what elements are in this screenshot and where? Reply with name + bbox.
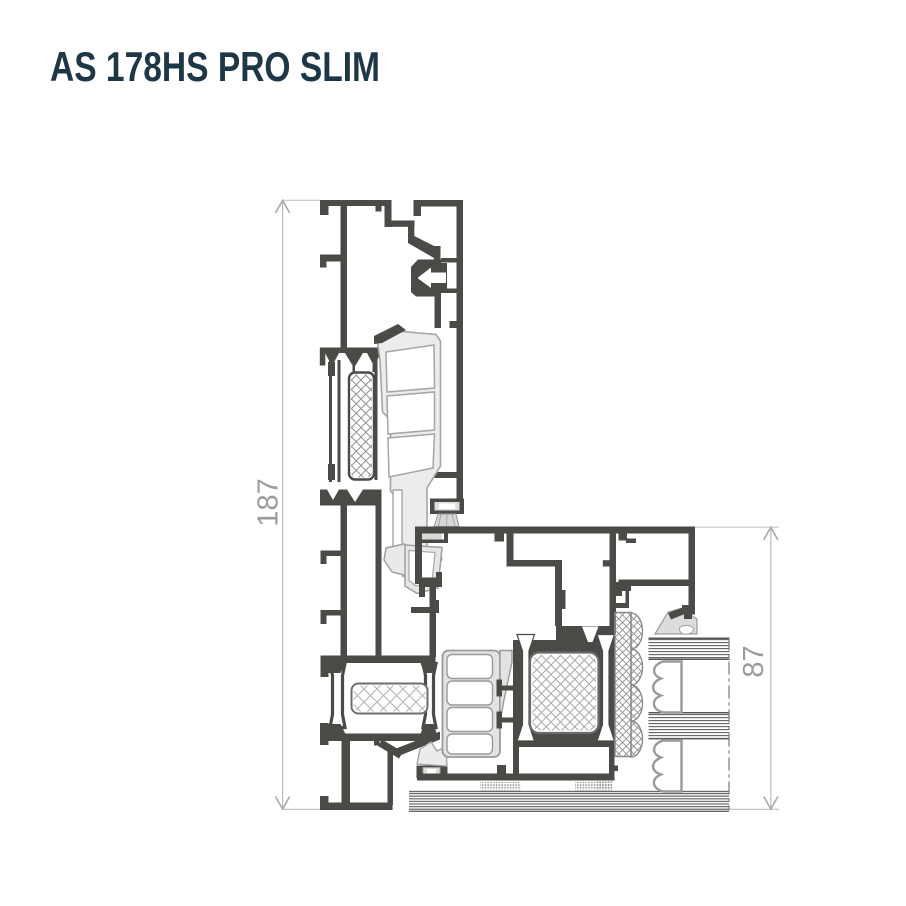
svg-text:187: 187 — [253, 478, 285, 526]
svg-text:87: 87 — [738, 645, 770, 677]
svg-text:AS 178HS PRO SLIM: AS 178HS PRO SLIM — [50, 43, 380, 90]
